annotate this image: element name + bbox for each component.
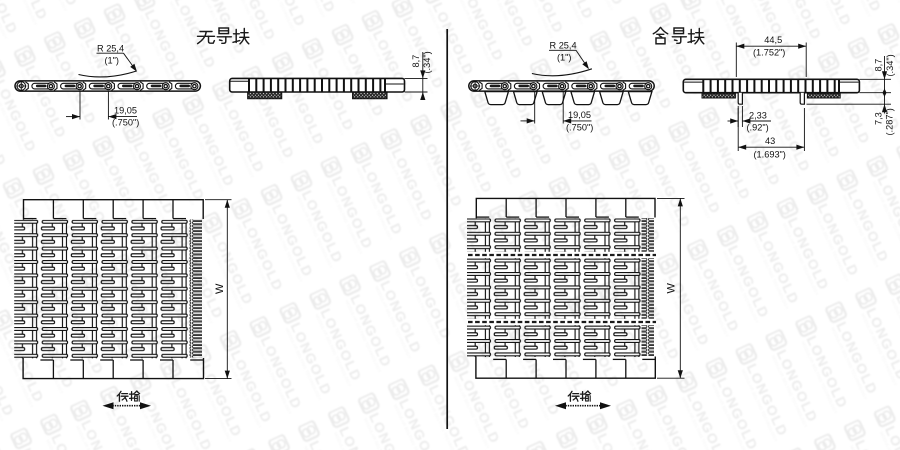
svg-text:(.287"): (.287") (885, 108, 895, 135)
svg-text:(.750"): (.750") (112, 118, 139, 128)
svg-text:44,5: 44,5 (764, 35, 782, 45)
svg-text:(1.752"): (1.752") (753, 48, 785, 58)
svg-text:W: W (666, 283, 678, 294)
svg-text:R 25,4: R 25,4 (97, 44, 124, 54)
svg-text:8,7: 8,7 (874, 59, 884, 72)
svg-text:(.750"): (.750") (566, 123, 593, 133)
svg-text:(.92"): (.92") (747, 123, 769, 133)
svg-text:(1"): (1") (105, 56, 120, 66)
svg-text:R 25,4: R 25,4 (550, 41, 577, 51)
svg-text:7,3: 7,3 (874, 112, 884, 125)
svg-text:2,33: 2,33 (749, 110, 767, 120)
svg-text:(1.693"): (1.693") (754, 150, 786, 160)
svg-text:19,05: 19,05 (568, 110, 591, 120)
svg-text:(.34"): (.34") (885, 54, 895, 76)
svg-text:8,7: 8,7 (411, 55, 421, 68)
svg-text:W: W (214, 283, 226, 294)
svg-text:19,05: 19,05 (114, 106, 137, 116)
svg-text:(.34"): (.34") (422, 51, 432, 73)
svg-text:(1"): (1") (557, 53, 572, 63)
svg-text:43: 43 (765, 136, 775, 146)
